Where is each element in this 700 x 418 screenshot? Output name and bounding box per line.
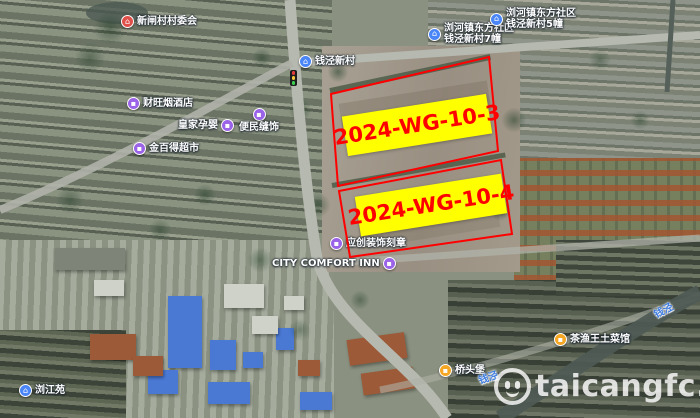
watermark: taicangfc.com (494, 368, 700, 405)
satellite-map[interactable]: ⌂ 新闸村村委会 ⌂ 钱泾新村 ⌂ 浏河镇东方社区钱泾新村7幢 ⌂ 浏河镇东方社… (0, 0, 700, 418)
camera-smiley-icon (494, 368, 531, 405)
watermark-text: taicangfc.com (535, 369, 700, 404)
